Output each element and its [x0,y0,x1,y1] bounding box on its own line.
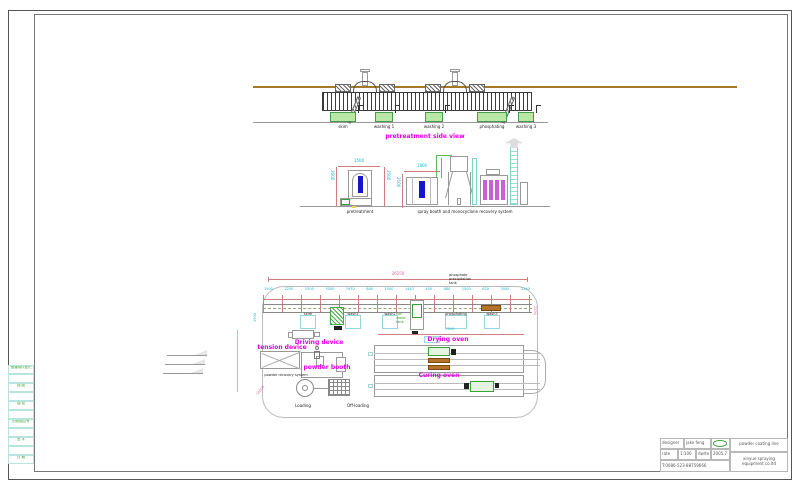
filter-cartridge [495,180,499,200]
recovery-fan-hub [302,385,308,391]
duct-hatch [379,84,395,92]
oven-marker [368,352,373,356]
revision-row: 签 字 [8,437,34,446]
marker-dot [352,206,356,208]
dim-text: 1500 [305,288,314,292]
title-block: designer jake feng rate 1:100 dw/te 2005… [660,438,788,472]
revision-row-blank [8,446,34,455]
company-cell: xinyue spraying equipment co.ltd [730,452,788,472]
curing-oven-label: Curing oven [404,373,474,379]
pipe-icon [536,105,541,113]
workpiece-plan [481,305,501,311]
product-cell: powder coating line [730,438,788,452]
flow-arrow-icon [163,367,203,374]
oven-conveyor-line [374,383,540,384]
pretreatment-label: pretreatment [330,210,390,214]
dim-line [268,279,528,280]
dim-text: 880 [444,288,451,292]
tank-skim [330,112,356,122]
duct-curve [353,81,377,92]
duct-hatch [335,84,351,92]
dim-text: 1800 [404,164,440,168]
plan-tank-label: wash3 [477,313,507,317]
dim-text: 400 [425,288,432,292]
duct-curve [443,81,467,92]
ground-line [300,206,550,207]
precip-tank-note: phosphate precipitation tank [449,273,489,286]
tank-label: washing 3 [506,125,546,129]
curing-fan-motor [464,383,469,389]
filter-top [486,169,500,175]
drying-fan-box [428,347,450,356]
duct-green [441,158,442,178]
stack-side-box [520,182,528,205]
note-line: tank [396,320,409,324]
dim-tick [268,277,269,282]
total-dim-text: 26250 [370,272,426,276]
filter-cartridge [501,180,505,200]
plan-tank [300,315,316,329]
recovery-filter-grid [328,379,350,396]
operator-body [314,351,320,359]
oven-conveyor-line [374,365,540,366]
loading-label: Loading [288,404,318,408]
dim-text: 620 [482,288,489,292]
drive-mark [334,326,342,330]
cyclone-top [450,156,468,172]
designer-value-cell: jake feng [684,438,711,449]
side-view-title: pretreatment side view [370,134,480,140]
dim-text: 3500 [386,170,390,180]
dim-text: 1500 [462,288,471,292]
overhead-rail-line [253,86,737,88]
burner-bar [428,358,450,363]
duct-hatch [425,84,441,92]
powder-recovery-label: powder recovery system [250,374,322,378]
dim-text: 2250 [284,288,293,292]
date-label-cell: dw/te [696,449,711,460]
dim-text: 3000 [325,288,334,292]
pipe-icon [445,105,450,113]
dim-line [378,334,524,335]
dim-text: 3000 [501,288,510,292]
flow-arrow-icon [167,349,207,356]
pipe-icon [358,105,363,113]
dim-text: 2200 [532,306,536,315]
offloading-label: Off-loading [338,404,378,408]
cyclone-leg [448,172,449,205]
tank-label: skim [323,125,363,129]
curing-fan-part [495,383,499,388]
filter-cartridge [483,180,487,200]
booth-line [430,177,431,205]
powder-booth-label: powder booth [303,365,351,371]
cyclone-stem [457,198,461,205]
dim-text: 2500 [396,177,400,187]
plan-tank-label: skim [293,313,323,317]
dim-line-pink [237,330,238,392]
filter-cartridge [489,180,493,200]
flow-arrow-icon [165,358,205,365]
plan-tank-label: phosphating [441,313,471,317]
workpiece-bar [358,176,363,193]
dim-text: 2250 [521,288,530,292]
drying-oven-label: Drying oven [408,337,488,343]
plan-tank-label: wash1 [338,313,368,317]
designer-label-cell: designer [660,438,684,449]
recovery-duct [314,388,328,389]
cyclone-leg [470,172,471,205]
workpiece-bar [419,181,425,198]
date-value-cell: 2005.7 [711,449,730,460]
dim-line [336,167,337,206]
oven-return-loop [524,350,546,394]
elevation-views: 1500 3500 2600 pretreatment 1800 2500 [0,150,800,230]
oven-conveyor-line [374,359,540,360]
dim-text: 1970 [346,288,355,292]
dim-text: 1443 [405,288,414,292]
phone-cell: T:0086-523-88759666 [660,460,730,472]
dim-text: 1500 [384,288,393,292]
dim-line [263,299,532,300]
pretreatment-side-view: skim washing 1 washing 2 phosphating was… [0,0,800,150]
plan-tank [345,315,361,329]
tank-washing2 [425,112,443,122]
dim-text: 7500 [430,328,470,332]
pipe-icon [509,105,514,113]
dim-tick [527,277,528,282]
driving-device-body [292,330,314,339]
duct-green [436,156,437,178]
tank-label: washing 2 [414,125,454,129]
hot-water-inner [412,304,422,318]
booth-line [412,177,413,205]
plan-tank [484,315,500,329]
drawing-sheet: 借通用件登记 描 图 描 校 旧底图总号 签 字 日 期 [0,0,800,493]
tank-phosphating [477,112,507,122]
segment-dims-row: 1500 2250 1500 3000 1970 880 1500 1443 4… [264,288,530,292]
plan-view: 26250 phosphate precipitation tank 1500 … [0,260,800,430]
burner-bar [428,365,450,370]
duct-hatch [469,84,485,92]
tank-washing3 [518,112,534,122]
company-logo-icon [713,440,727,447]
dim-line [404,171,440,172]
duct-teal [472,158,477,205]
tank-washing1 [375,112,393,122]
driving-device-motor [288,332,293,338]
dim-text: 1500 [340,159,378,163]
note-line: tank [449,281,489,285]
driving-device-part [314,332,320,337]
drying-fan-motor [451,349,456,355]
pretreat-base-green [341,199,350,205]
dim-line [338,166,380,167]
tank-label: washing 1 [364,125,404,129]
curing-fan-box [470,381,494,392]
rate-value-cell: 1:100 [678,449,696,460]
exhaust-stack [510,147,518,205]
hot-water-note: hot water tank [396,312,409,325]
dim-text: 1500 [264,288,273,292]
oven-marker [368,384,373,388]
pipe-icon [395,105,400,113]
cyclone-cone-left [445,172,453,198]
dim-text: 880 [366,288,373,292]
revision-row: 日 期 [8,455,34,464]
oven-conveyor-line [374,353,540,354]
spray-system-label: spray booth and monocyclone recovery sys… [390,210,540,214]
rate-label-cell: rate [660,449,678,460]
oven-conveyor-line [374,389,540,390]
dim-text: 2600 [330,170,334,180]
dim-line [402,174,403,208]
operator-head [315,346,319,350]
dim-text: 1500 [254,313,258,322]
